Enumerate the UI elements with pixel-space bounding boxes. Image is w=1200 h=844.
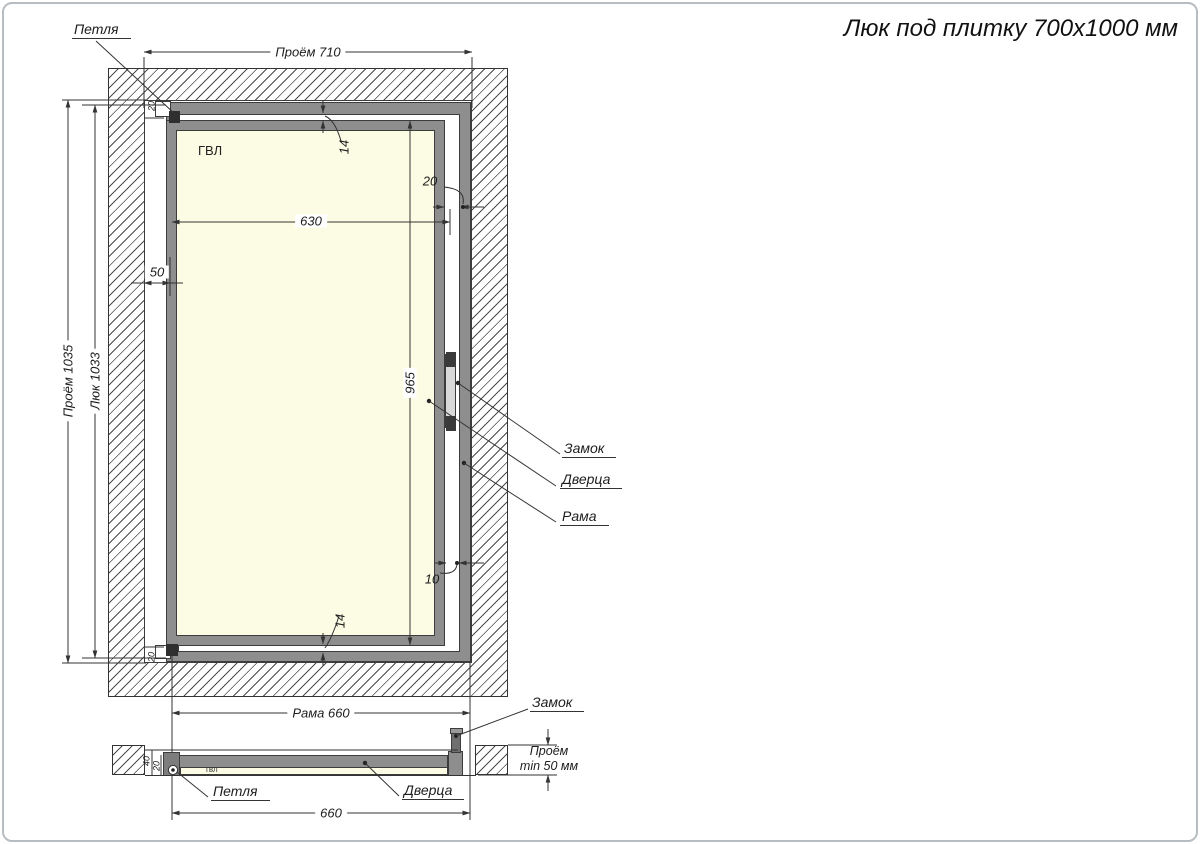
section-lock-body xyxy=(451,731,461,753)
section-lock-knob xyxy=(450,728,463,734)
opening-depth-note-line2: min 50 мм xyxy=(518,759,580,774)
door-panel-gvl xyxy=(176,130,435,636)
wall-section-right xyxy=(475,745,508,775)
hinge-top xyxy=(169,111,180,123)
hinge-label-section: Петля xyxy=(211,784,270,801)
drawing-page: Люк под плитку 700х1000 мм Петля Проём 7… xyxy=(0,0,1200,844)
opening-depth-note: Проём min 50 мм xyxy=(518,744,580,774)
door-label-front: Дверца xyxy=(560,472,622,489)
section-lock-cap xyxy=(448,751,463,776)
section-hinge-cap xyxy=(163,752,180,776)
panel-material-label: ГВЛ xyxy=(198,143,222,158)
opening-depth-note-line1: Проём xyxy=(518,744,580,759)
door-label-section: Дверца xyxy=(402,783,464,800)
hinge-label-front: Петля xyxy=(72,22,131,39)
hinge-bottom xyxy=(166,644,178,656)
drawing-title: Люк под плитку 700х1000 мм xyxy=(844,15,1178,43)
lock-block-bottom xyxy=(446,416,456,431)
lock-label-section: Замок xyxy=(530,695,584,712)
section-gvl-strip xyxy=(180,767,448,775)
lock-label-front: Замок xyxy=(562,441,616,458)
lock-block-top xyxy=(446,352,456,367)
frame-label-front: Рама xyxy=(560,509,609,526)
panel-material-label-section: гвл xyxy=(206,766,218,774)
